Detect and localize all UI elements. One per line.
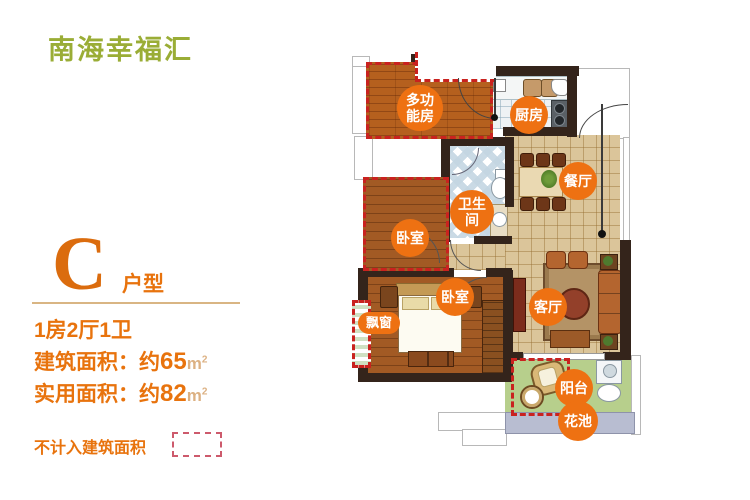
room-label-flower-bed: 花池 <box>558 401 598 441</box>
room-label-bathroom: 卫生间 <box>450 190 494 234</box>
kitchen-door-leaf <box>494 78 496 118</box>
bench <box>550 330 590 348</box>
door-pivot-dot <box>491 114 498 121</box>
plant <box>603 336 613 346</box>
wall <box>358 373 512 382</box>
dining-chair <box>552 197 566 211</box>
bay-window-area <box>352 300 371 368</box>
room-label-dining: 餐厅 <box>559 162 597 200</box>
room-label-bedroom-main: 卧室 <box>436 278 474 316</box>
room-label-bay-window: 飘窗 <box>358 312 400 334</box>
door-pivot-dot <box>598 230 606 238</box>
right-boundary <box>623 137 630 243</box>
floorplan: 多功能房 厨房 餐厅 卫生间 卧室 卧室 客厅 飘窗 阳台 花池 <box>0 0 750 500</box>
sofa <box>598 270 622 334</box>
wall <box>505 137 514 207</box>
exterior-ledge <box>354 136 373 180</box>
plant <box>603 256 613 266</box>
bath-sink <box>492 212 507 227</box>
entry-door-leaf <box>601 104 603 232</box>
stove-burner <box>554 103 565 114</box>
pillow <box>402 297 429 310</box>
fridge <box>551 79 568 96</box>
balcony-basin <box>597 384 621 402</box>
armchair <box>568 251 588 269</box>
wall <box>620 240 631 356</box>
dining-chair <box>520 197 534 211</box>
room-label-multi: 多功能房 <box>397 85 443 131</box>
armchair <box>546 251 566 269</box>
room-label-bedroom-small: 卧室 <box>391 219 429 257</box>
room-label-living: 客厅 <box>529 288 567 326</box>
stove-burner <box>554 115 565 126</box>
dining-chair <box>536 197 550 211</box>
nightstand <box>380 286 398 308</box>
plant <box>541 170 557 188</box>
wall <box>603 352 631 360</box>
kitchen-sink <box>523 79 542 97</box>
bed-bench <box>408 351 454 367</box>
exterior-step <box>462 429 507 446</box>
tv-cabinet <box>513 278 526 332</box>
washing-machine-drum <box>603 364 617 378</box>
room-label-kitchen: 厨房 <box>510 96 548 134</box>
dining-chair <box>520 153 534 167</box>
dining-chair <box>536 153 550 167</box>
exterior-ledge <box>352 66 367 134</box>
dining-chair <box>552 153 566 167</box>
